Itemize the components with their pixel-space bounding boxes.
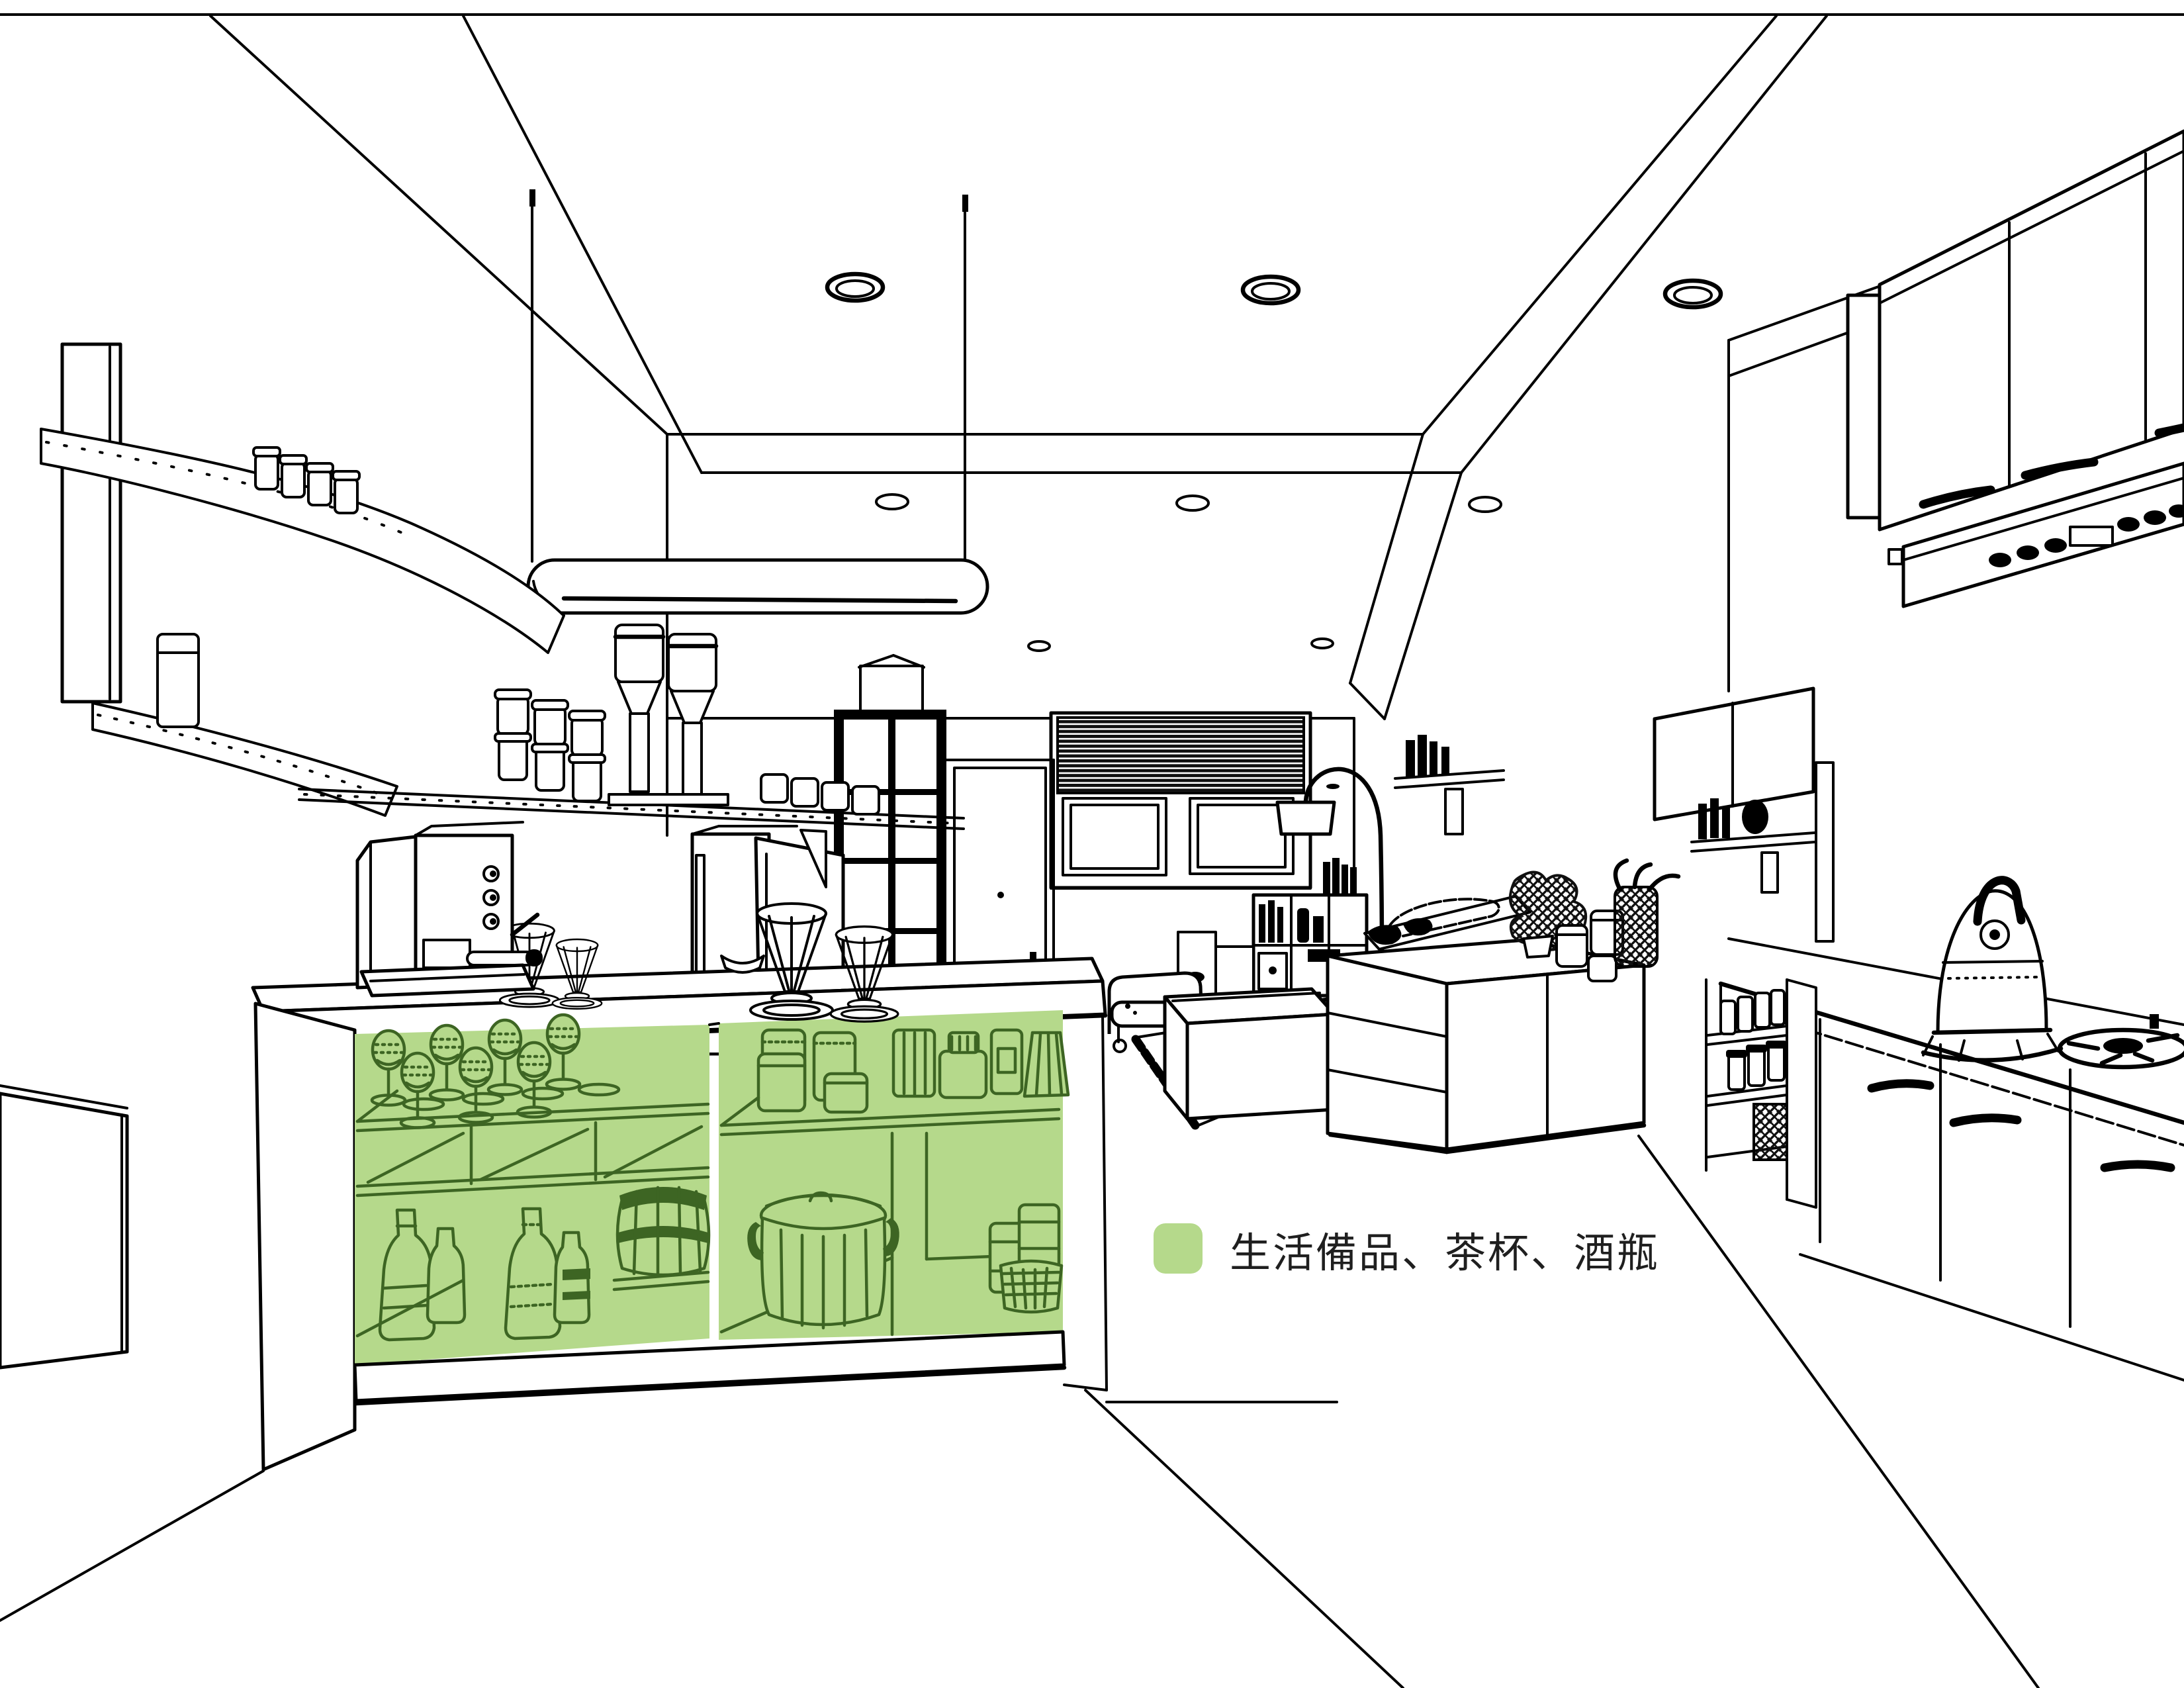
wire-bottle-basket — [1754, 1104, 1787, 1160]
books-on-top — [1323, 858, 1357, 895]
lidded-pot — [747, 1193, 899, 1328]
left-wall-shelves — [41, 344, 964, 887]
highlight-left-bay — [355, 1015, 709, 1365]
wall-shelf-vase — [1692, 798, 1815, 892]
wall-shelf-books — [1395, 735, 1504, 834]
drawer-handle — [1954, 1118, 2017, 1123]
wire-basket — [1615, 887, 1657, 966]
pendant-light — [528, 189, 987, 613]
line-drawing: 生活備品、茶杯、酒瓶 — [0, 0, 2184, 1688]
small-barrel — [617, 1187, 709, 1275]
jar-set — [495, 690, 605, 801]
foreground-counter-end — [0, 1086, 127, 1368]
drawer-handle — [2105, 1164, 2171, 1168]
cabinet-handle — [2159, 428, 2184, 433]
legend-swatch — [1154, 1223, 1203, 1274]
legend: 生活備品、茶杯、酒瓶 — [1154, 1223, 1660, 1276]
kitchen-rendering-canvas: 生活備品、茶杯、酒瓶 — [0, 0, 2184, 1688]
legend-label: 生活備品、茶杯、酒瓶 — [1230, 1231, 1660, 1276]
window-blinds — [1058, 718, 1304, 793]
basket-utensils — [1615, 861, 1678, 890]
drawer-handle — [1872, 1084, 1930, 1088]
espresso-machine — [357, 822, 543, 996]
open-shelf-unit — [1706, 980, 1816, 1207]
window — [1051, 713, 1310, 888]
highlight-right-bay — [719, 1010, 1068, 1340]
cup-row — [761, 774, 879, 814]
kettle — [1923, 880, 2061, 1060]
coffee-table — [1165, 989, 1334, 1119]
upper-cabinets — [1848, 131, 2184, 530]
